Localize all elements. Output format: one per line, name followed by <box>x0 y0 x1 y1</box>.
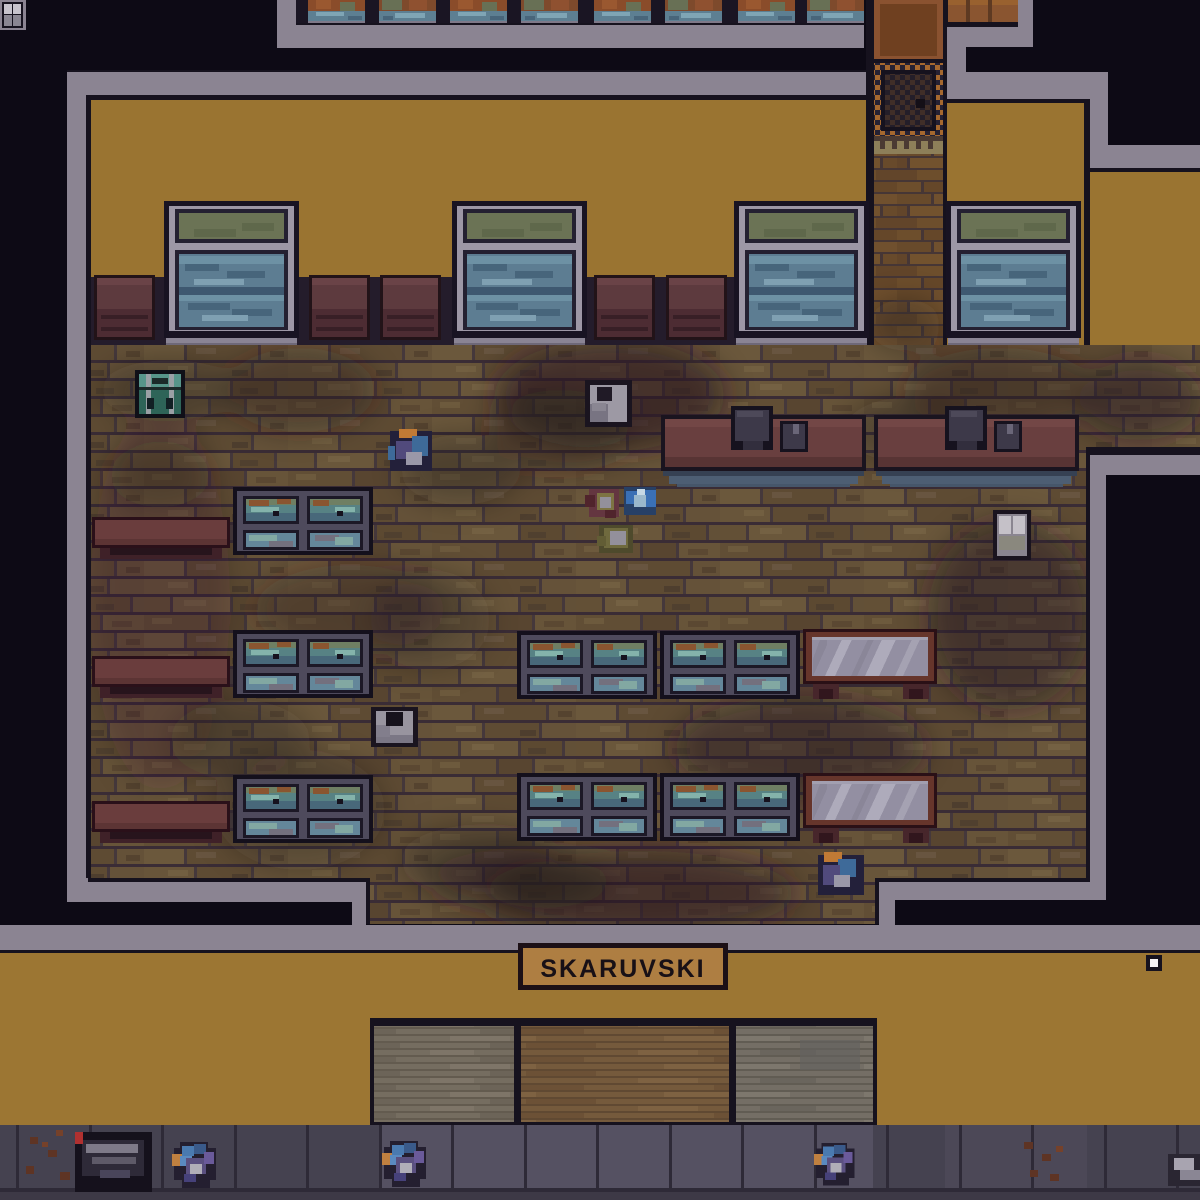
svg-text:SKARUVSKI: SKARUVSKI <box>540 955 705 983</box>
